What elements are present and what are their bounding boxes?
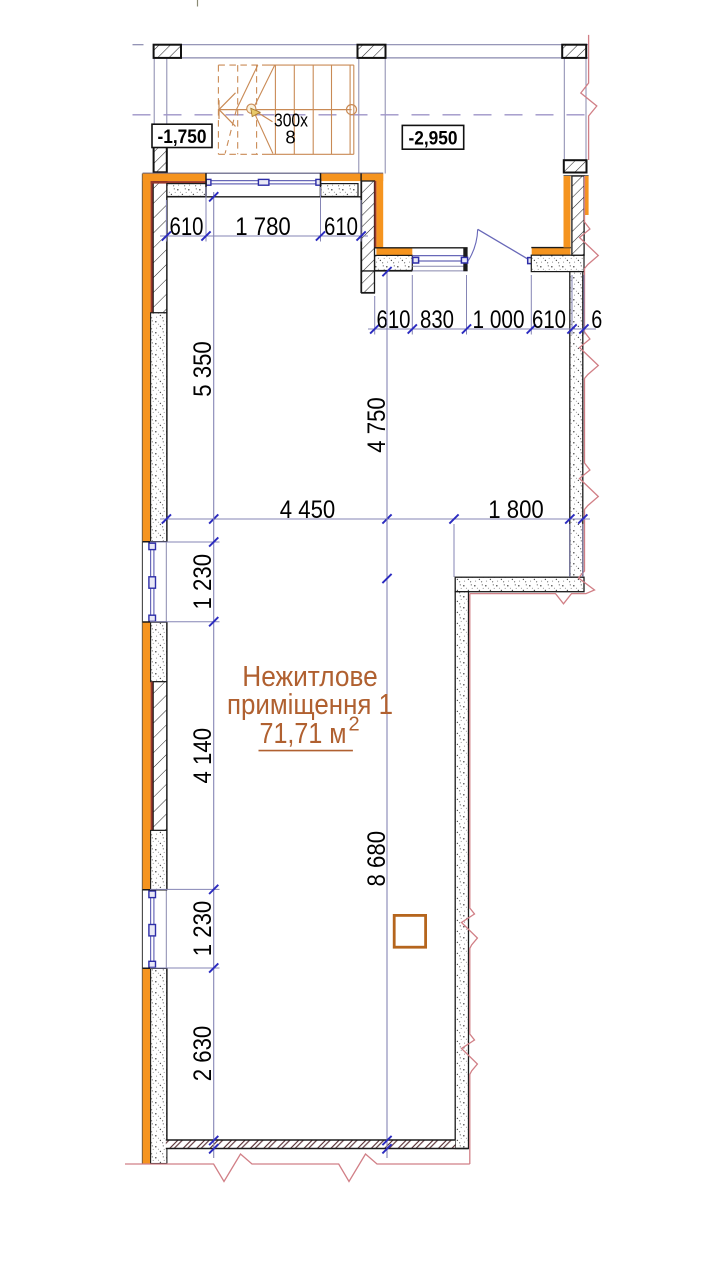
svg-text:1 800: 1 800 bbox=[488, 496, 544, 524]
svg-text:1 780: 1 780 bbox=[235, 213, 291, 241]
svg-text:71,71 м: 71,71 м bbox=[260, 718, 347, 750]
svg-text:4 450: 4 450 bbox=[280, 496, 336, 524]
svg-text:610: 610 bbox=[170, 213, 204, 241]
svg-text:8 680: 8 680 bbox=[363, 831, 391, 887]
svg-text:1 230: 1 230 bbox=[189, 554, 217, 610]
svg-text:2: 2 bbox=[349, 714, 360, 736]
svg-text:610: 610 bbox=[377, 306, 411, 334]
svg-text:6: 6 bbox=[591, 306, 602, 334]
svg-text:4 140: 4 140 bbox=[189, 728, 217, 784]
svg-text:Нежитлове: Нежитлове bbox=[242, 661, 378, 693]
svg-text:610: 610 bbox=[532, 306, 566, 334]
svg-text:-1,750: -1,750 bbox=[158, 127, 207, 148]
svg-text:8: 8 bbox=[285, 127, 295, 148]
svg-text:830: 830 bbox=[420, 306, 454, 334]
svg-text:-2,950: -2,950 bbox=[409, 128, 458, 149]
svg-text:5 350: 5 350 bbox=[189, 341, 217, 397]
svg-text:приміщення 1: приміщення 1 bbox=[227, 689, 393, 721]
svg-text:1 230: 1 230 bbox=[189, 901, 217, 957]
svg-text:610: 610 bbox=[324, 213, 358, 241]
svg-text:1 000: 1 000 bbox=[473, 306, 525, 334]
svg-text:4 750: 4 750 bbox=[363, 397, 391, 453]
svg-text:2 630: 2 630 bbox=[189, 1026, 217, 1082]
